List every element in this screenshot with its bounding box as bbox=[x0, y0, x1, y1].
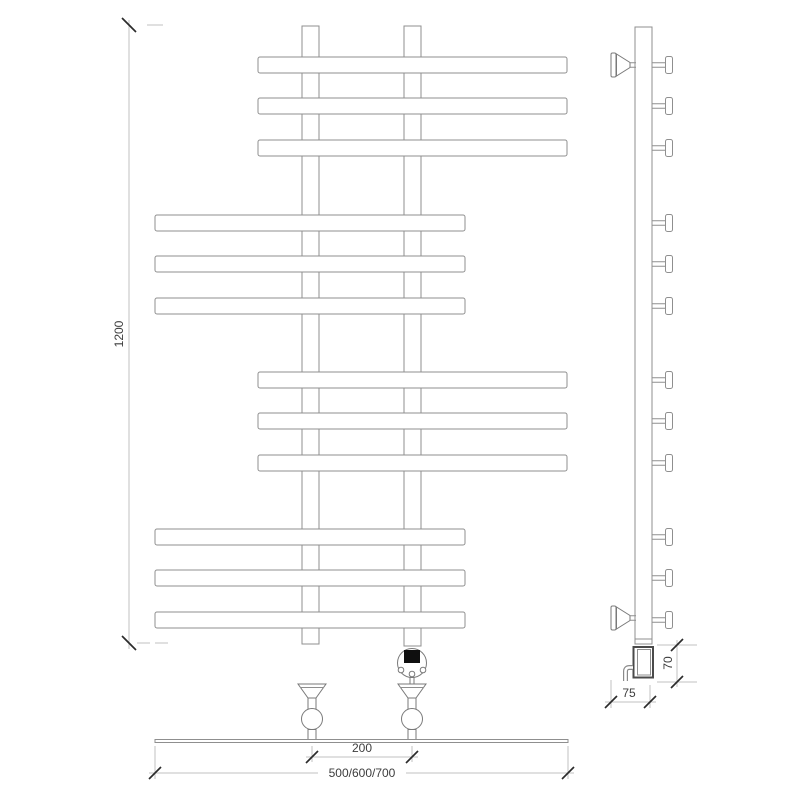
valve-stem bbox=[408, 698, 416, 709]
towel-bar bbox=[258, 413, 567, 429]
dimension-label-spacing: 200 bbox=[352, 741, 372, 755]
controller-button-icon bbox=[409, 671, 415, 677]
thermostat-controller bbox=[398, 649, 427, 685]
valve-ball bbox=[302, 709, 323, 730]
bar-end-stub bbox=[652, 529, 673, 546]
towel-bar bbox=[258, 372, 567, 388]
controller-button-icon bbox=[420, 667, 426, 673]
bar-end-stub bbox=[652, 570, 673, 587]
bar-end-stub bbox=[652, 140, 673, 157]
side-view bbox=[611, 27, 673, 681]
bar-end-stub bbox=[652, 372, 673, 389]
dimension-spacing: 200 bbox=[306, 741, 418, 763]
bar-end-stubs bbox=[652, 57, 673, 629]
front-right-tube bbox=[404, 26, 421, 646]
heating-element bbox=[626, 647, 654, 681]
dimension-height: 1200 bbox=[112, 18, 168, 650]
dimension-label-width: 500/600/700 bbox=[329, 766, 396, 780]
front-left-tube bbox=[302, 26, 319, 644]
towel-bar bbox=[258, 455, 567, 471]
valve-stem bbox=[308, 730, 316, 741]
bar-end-stub bbox=[652, 57, 673, 74]
valve-stem bbox=[408, 730, 416, 741]
towel-bar bbox=[155, 570, 465, 586]
bar-end-stub bbox=[652, 215, 673, 232]
bar-end-stub bbox=[652, 298, 673, 315]
wall-bracket-top bbox=[611, 53, 636, 77]
dimension-label-height: 1200 bbox=[112, 320, 126, 347]
towel-bar bbox=[155, 612, 465, 628]
technical-drawing-towel-radiator: 1200 200 500/600/700 75 bbox=[0, 0, 800, 800]
wall-bracket-bottom bbox=[611, 606, 636, 630]
dimension-wall-offset: 75 bbox=[605, 680, 656, 708]
dimension-label-heater-height: 70 bbox=[661, 656, 675, 670]
valve-ball bbox=[402, 709, 423, 730]
controller-stem bbox=[410, 678, 414, 685]
front-view bbox=[155, 26, 568, 743]
valve-stem bbox=[308, 698, 316, 709]
bar-end-stub bbox=[652, 256, 673, 273]
dimension-heater-height: 70 bbox=[657, 639, 697, 688]
bar-end-stub bbox=[652, 98, 673, 115]
dimension-label-wall-offset: 75 bbox=[622, 686, 636, 700]
bar-end-stub bbox=[652, 455, 673, 472]
side-tube bbox=[635, 27, 652, 644]
towel-bar bbox=[258, 98, 567, 114]
drawing-svg: 1200 200 500/600/700 75 bbox=[0, 0, 800, 800]
controller-display bbox=[404, 650, 420, 663]
towel-bar bbox=[258, 57, 567, 73]
bar-end-stub bbox=[652, 612, 673, 629]
towel-bar bbox=[155, 529, 465, 545]
bar-end-stub bbox=[652, 413, 673, 430]
valve-cone bbox=[398, 684, 426, 698]
connection-valve-right bbox=[398, 684, 426, 740]
towel-bar bbox=[155, 215, 465, 231]
towel-bar bbox=[258, 140, 567, 156]
valve-cone bbox=[298, 684, 326, 698]
connection-valve-left bbox=[298, 684, 326, 740]
towel-bar bbox=[155, 256, 465, 272]
controller-button-icon bbox=[398, 667, 404, 673]
towel-bar bbox=[155, 298, 465, 314]
